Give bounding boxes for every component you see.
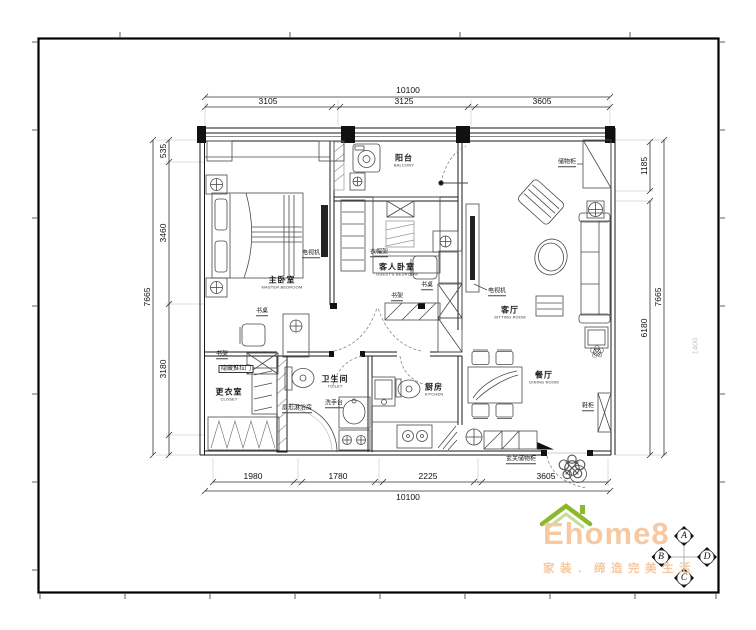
dim-note: 1400 (691, 338, 699, 355)
room-label-closet: 更衣室 CLOSET (216, 388, 243, 401)
label-storage-cabinet: 储物柜 (558, 159, 576, 167)
dim-bottom-seg-3: 2225 (419, 472, 438, 481)
compass-letter-c: C (681, 573, 687, 583)
walls (200, 128, 615, 455)
balcony-door (439, 181, 468, 185)
room-label-balcony: 阳台 BALCONY (393, 154, 414, 167)
hatch (277, 142, 457, 450)
page-frame (32, 32, 725, 599)
room-label-kitchen: 厨房 KITCHEN (424, 383, 444, 396)
columns (197, 126, 615, 456)
dim-right-seg-1: 1185 (640, 157, 649, 175)
room-label-master-bedroom: 主卧室 MASTER BEDROOM (260, 276, 303, 289)
logo-brand-text: Ehome8 (543, 516, 670, 552)
floor-plan-page: 10100 3105 3125 3605 1980 1780 2225 3605… (0, 0, 756, 630)
label-bookshelf-master: 书架 (216, 351, 228, 359)
dim-bottom-seg-2: 1780 (329, 472, 348, 481)
label-desk-guest: 书桌 (421, 282, 433, 290)
room-label-living-room: 客厅 SITTING ROOM (493, 306, 526, 319)
dim-left-total: 7665 (143, 288, 152, 307)
label-tv-living: 电视机 (488, 288, 506, 296)
dim-top-seg-1: 3105 (259, 97, 278, 106)
logo-slogan-text: 家装．缔造完美生活 (543, 560, 696, 576)
dim-bottom-seg-4: 3605 (537, 472, 556, 481)
dim-left-seg-1: 535 (159, 144, 168, 158)
label-entry-storage: 玄关储物柜 (506, 456, 536, 464)
dim-bottom-seg-1: 1980 (244, 472, 263, 481)
label-bookshelf-guest: 书架 (391, 293, 403, 301)
label-washbasin: 洗手台 (325, 400, 343, 408)
compass-letter-b: B (658, 552, 664, 562)
compass-letter-d: D (704, 552, 711, 562)
dim-left-seg-3: 3180 (159, 360, 168, 379)
dim-top-seg-3: 3605 (533, 97, 552, 106)
dim-left-seg-2: 3460 (159, 224, 168, 243)
dim-right-seg-2: 6180 (640, 319, 649, 338)
label-desk-master: 书桌 (256, 308, 268, 316)
dim-bottom-total: 10100 (396, 493, 420, 502)
compass-letter-a: A (681, 531, 687, 541)
dim-top-total: 10100 (396, 86, 420, 95)
room-label-guest-bedroom: 客人卧室 GUEST'S BEDROOM (375, 263, 419, 276)
label-shower: 扇形淋浴房 (282, 405, 312, 413)
label-shoe-cabinet: 鞋柜 (582, 403, 594, 411)
dim-top-seg-2: 3125 (395, 97, 414, 106)
label-tv-master: 电视机 (302, 250, 320, 258)
room-label-bathroom: 卫生间 TOILET (322, 375, 349, 388)
room-label-dining-room: 餐厅 DINING ROOM (528, 371, 559, 384)
label-coat-rack: 衣帽架 (370, 249, 388, 257)
label-hidden-sliding-door: 隐藏推拉门 (218, 365, 253, 373)
dim-right-total: 7665 (654, 288, 663, 307)
